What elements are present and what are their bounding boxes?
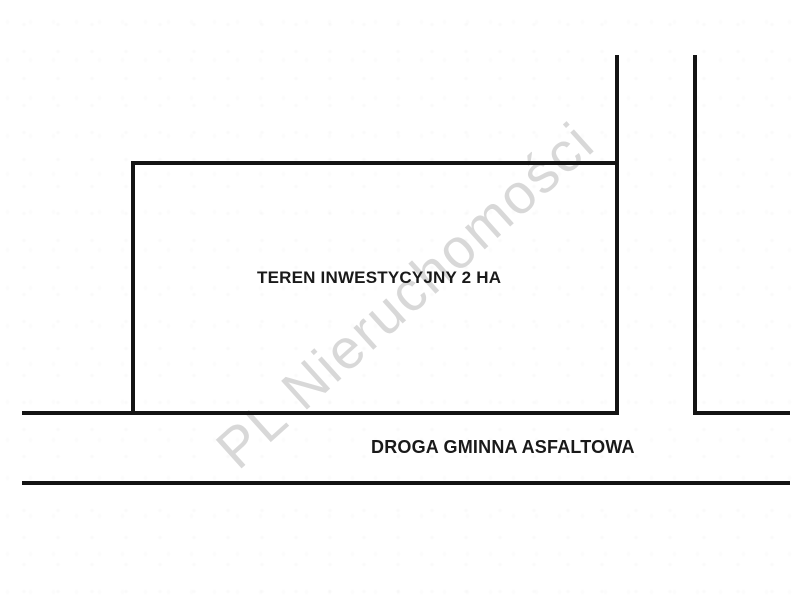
road-upper-edge-right-line (693, 411, 790, 415)
parcel-outline (131, 161, 619, 415)
side-road-left-edge-line (615, 55, 619, 165)
road-label: DROGA GMINNA ASFALTOWA (371, 437, 635, 458)
road-upper-edge-left-line (22, 411, 135, 415)
parcel-label: TEREN INWESTYCYJNY 2 HA (257, 268, 501, 288)
side-road-right-edge-line (693, 55, 697, 415)
plot-sketch-canvas: PL Nieruchomości TEREN INWESTYCYJNY 2 HA… (0, 0, 800, 600)
road-lower-edge-line (22, 481, 790, 485)
